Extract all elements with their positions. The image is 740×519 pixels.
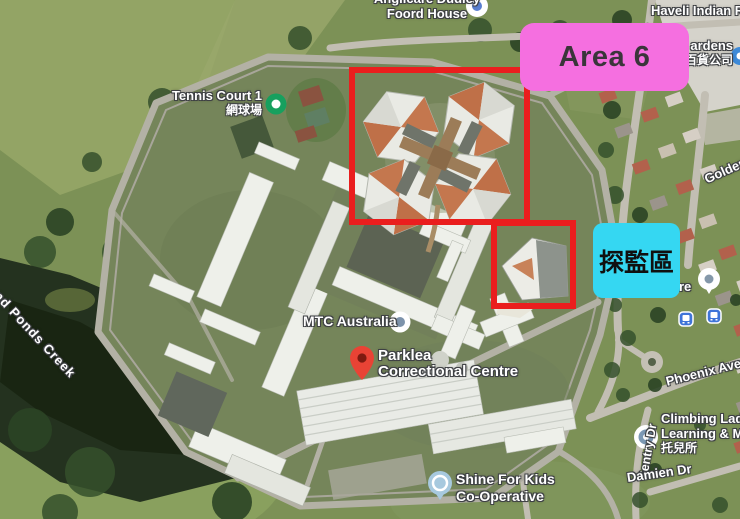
tennis-poi-icon[interactable]	[265, 93, 287, 120]
poi-label-parklea[interactable]: Parklea Correctional Centre	[378, 348, 518, 380]
bus-stop-icon[interactable]	[706, 308, 722, 329]
poi-label-foord-house[interactable]: Anglicare Dudley Foord House	[352, 0, 502, 21]
highlight-rect-visiting	[491, 220, 576, 309]
satellite-map[interactable]: Anglicare Dudley Foord House Haveli Indi…	[0, 0, 740, 519]
poi-label-mtc[interactable]: MTC Australia	[303, 314, 397, 329]
community-poi-icon[interactable]	[427, 470, 453, 507]
poi-label-haveli[interactable]: Haveli Indian Re	[651, 3, 740, 18]
red-map-pin-icon[interactable]	[350, 346, 374, 385]
poi-label-shine[interactable]: Shine For Kids Co-Operative	[456, 471, 555, 505]
poi-label-climbing[interactable]: Climbing Ladd Learning & Mo 托兒所	[661, 411, 740, 456]
poi-label-partial[interactable]: re	[679, 279, 691, 294]
annotation-visiting-area: 探監區	[593, 223, 680, 298]
highlight-rect-area6	[349, 67, 530, 225]
poi-label-tennis-court[interactable]: Tennis Court 1 網球場	[150, 88, 262, 118]
store-pin-icon[interactable]	[697, 267, 721, 302]
bus-stop-icon[interactable]	[678, 311, 694, 332]
annotation-area6: Area 6	[520, 23, 689, 91]
